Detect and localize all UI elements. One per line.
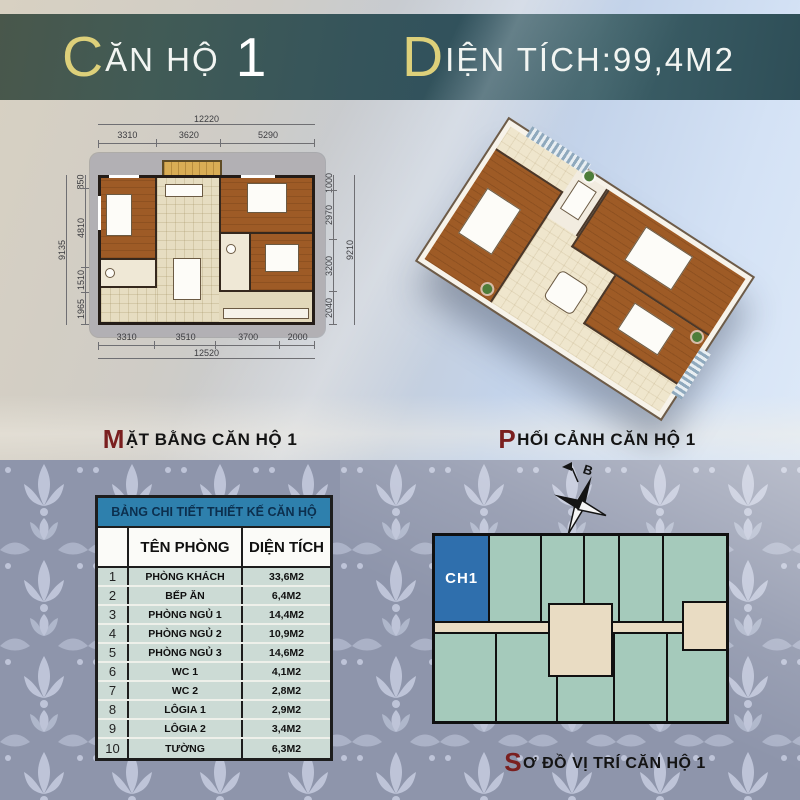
- top-section: C ĂN HỘ 1 D IỆN TÍCH:99,4M2 12220 3310 3…: [0, 0, 800, 460]
- table-title: BẢNG CHI TIẾT THIẾT KẾ CĂN HỘ: [98, 498, 330, 528]
- table-row: 8LÔGIA 12,9M2: [98, 701, 330, 720]
- table-row: 4PHÒNG NGỦ 210,9M2: [98, 625, 330, 644]
- unit-ch1: CH1: [435, 536, 490, 621]
- entry: [101, 288, 157, 322]
- row-area: 2,8M2: [243, 682, 330, 699]
- table-header-row: TÊN PHÒNG DIỆN TÍCH: [98, 528, 330, 568]
- 3d-apartment: [418, 120, 753, 419]
- caption-key-plan: SƠ ĐỒ VỊ TRÍ CĂN HỘ 1: [465, 755, 745, 773]
- living-room: [157, 178, 219, 322]
- row-no: 2: [98, 587, 129, 604]
- row-area: 3,4M2: [243, 720, 330, 737]
- window: [109, 175, 139, 178]
- row-name: PHÒNG NGỦ 1: [129, 606, 243, 623]
- row-area: 33,6M2: [243, 568, 330, 585]
- row-name: PHÒNG NGỦ 2: [129, 625, 243, 642]
- row-name: LÔGIA 2: [129, 720, 243, 737]
- bathroom-2: [219, 234, 249, 292]
- floorplan-2d: 12220 3310 3620 5290 9135 850 4810 1510 …: [55, 110, 405, 410]
- design-table: BẢNG CHI TIẾT THIẾT KẾ CĂN HỘ TÊN PHÒNG …: [95, 495, 333, 761]
- dim-left-total: 9135: [55, 175, 69, 325]
- bedroom-1: [101, 178, 157, 260]
- dim-bottom-segments: 3310 3510 3700 2000: [98, 332, 315, 346]
- table-row: 9LÔGIA 23,4M2: [98, 720, 330, 739]
- kitchen-counter: [223, 308, 309, 319]
- title-initial: C: [62, 29, 103, 86]
- unit-divider: [662, 536, 664, 621]
- compass-icon: B: [545, 460, 615, 540]
- apartment-poster: C ĂN HỘ 1 D IỆN TÍCH:99,4M2 12220 3310 3…: [0, 0, 800, 800]
- row-name: TƯỜNG: [129, 739, 243, 758]
- caption-2d-plan: MẶT BẰNG CĂN HỘ 1: [70, 430, 330, 450]
- unit-divider: [618, 536, 620, 621]
- bedroom-3: [249, 234, 312, 292]
- row-area: 14,4M2: [243, 606, 330, 623]
- row-no: 6: [98, 663, 129, 680]
- row-area: 14,6M2: [243, 644, 330, 661]
- row-area: 10,9M2: [243, 625, 330, 642]
- row-name: WC 1: [129, 663, 243, 680]
- col-no: [98, 528, 129, 566]
- apartment-title: C ĂN HỘ 1: [62, 14, 266, 100]
- dim-top-segments: 3310 3620 5290: [98, 130, 315, 144]
- area-title: D IỆN TÍCH:99,4M2: [402, 14, 735, 100]
- row-name: LÔGIA 1: [129, 701, 243, 718]
- compass-label: B: [581, 461, 595, 478]
- unit-divider: [666, 634, 668, 721]
- bedroom-2: [219, 178, 312, 234]
- title-number: 1: [236, 25, 267, 89]
- bottom-section: BẢNG CHI TIẾT THIẾT KẾ CĂN HỘ TÊN PHÒNG …: [0, 460, 800, 800]
- row-no: 8: [98, 701, 129, 718]
- header-band: C ĂN HỘ 1 D IỆN TÍCH:99,4M2: [0, 14, 800, 100]
- key-plan: CH1: [432, 533, 729, 724]
- dim-bottom-total: 12520: [98, 348, 315, 362]
- row-no: 1: [98, 568, 129, 585]
- caption-3d-view: PHỐI CẢNH CĂN HỘ 1: [467, 430, 727, 450]
- row-area: 6,4M2: [243, 587, 330, 604]
- plan-walls: [98, 175, 315, 325]
- central-lobby: [548, 603, 612, 677]
- window: [98, 196, 101, 230]
- row-name: PHÒNG NGỦ 3: [129, 644, 243, 661]
- row-area: 2,9M2: [243, 701, 330, 718]
- table-row: 10TƯỜNG6,3M2: [98, 739, 330, 758]
- row-no: 4: [98, 625, 129, 642]
- row-no: 3: [98, 606, 129, 623]
- row-area: 4,1M2: [243, 663, 330, 680]
- right-lobby: [682, 601, 726, 651]
- bathroom-1: [101, 260, 157, 288]
- dim-left-segments: 850 4810 1510 1965: [73, 175, 89, 325]
- row-area: 6,3M2: [243, 739, 330, 758]
- row-no: 5: [98, 644, 129, 661]
- col-room-name: TÊN PHÒNG: [129, 528, 243, 566]
- row-no: 9: [98, 720, 129, 737]
- row-name: PHÒNG KHÁCH: [129, 568, 243, 585]
- unit-divider: [495, 634, 497, 721]
- table-row: 3PHÒNG NGỦ 114,4M2: [98, 606, 330, 625]
- area-initial: D: [402, 29, 443, 86]
- row-name: BẾP ĂN: [129, 587, 243, 604]
- table-row: 1PHÒNG KHÁCH33,6M2: [98, 568, 330, 587]
- table-row: 2BẾP ĂN6,4M2: [98, 587, 330, 606]
- table-row: 5PHÒNG NGỦ 314,6M2: [98, 644, 330, 663]
- row-no: 10: [98, 739, 129, 758]
- col-area: DIỆN TÍCH: [243, 528, 330, 566]
- area-text: IỆN TÍCH:99,4M2: [445, 35, 735, 79]
- title-text: ĂN HỘ: [105, 35, 220, 79]
- row-name: WC 2: [129, 682, 243, 699]
- unit-divider: [540, 536, 542, 621]
- dim-right-total: 9210: [343, 175, 357, 325]
- unit-divider: [613, 634, 615, 721]
- row-no: 7: [98, 682, 129, 699]
- dim-top-total: 12220: [98, 114, 315, 128]
- table-row: 6WC 14,1M2: [98, 663, 330, 682]
- floorplan-3d-render: [425, 125, 745, 415]
- table-row: 7WC 22,8M2: [98, 682, 330, 701]
- window: [241, 175, 275, 178]
